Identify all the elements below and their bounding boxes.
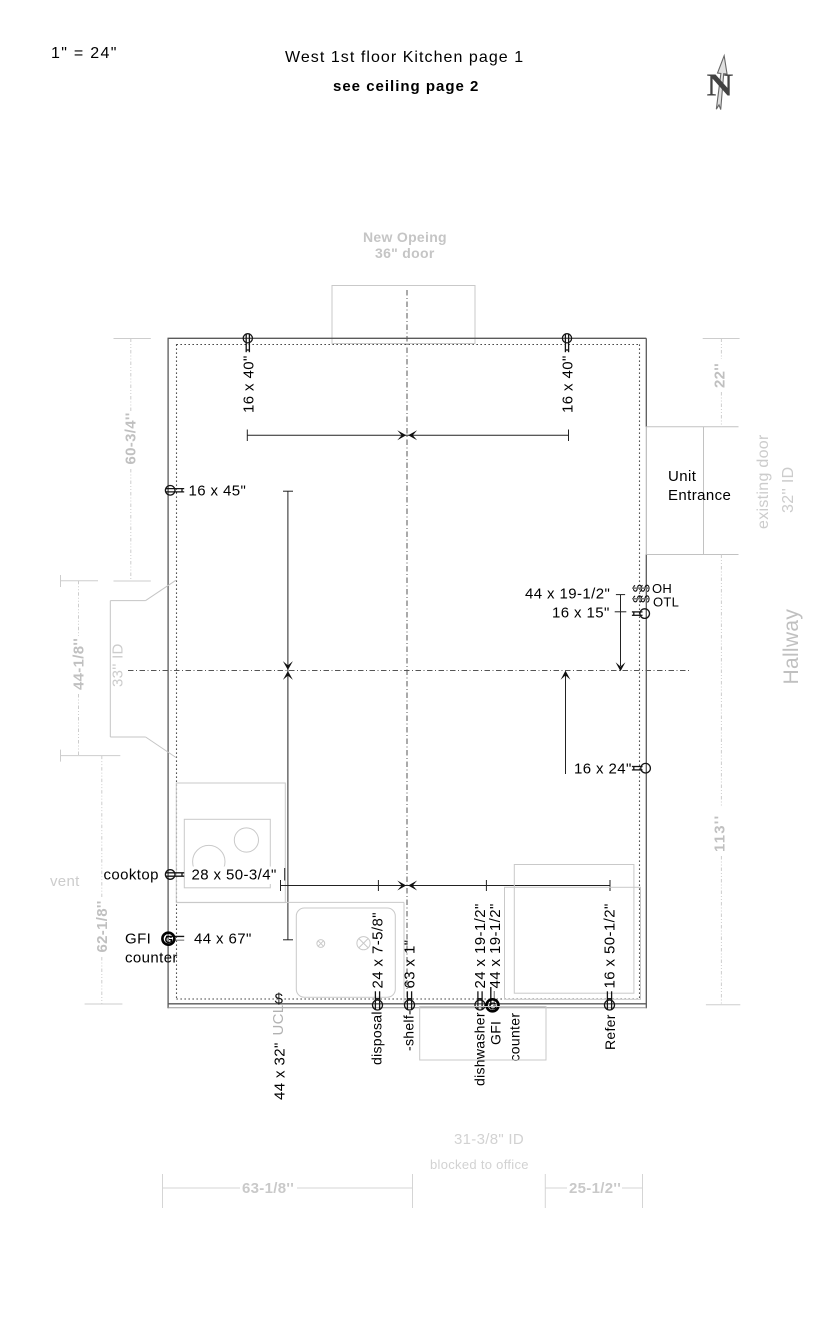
svg-text:36" door: 36" door (375, 245, 435, 261)
svg-text:25-1/2'': 25-1/2'' (569, 1180, 621, 1197)
svg-text:33'' ID: 33'' ID (110, 643, 127, 687)
svg-text:disposal: disposal (369, 1011, 385, 1065)
svg-text:16 x 40": 16 x 40" (560, 355, 577, 413)
svg-text:UCL: UCL (270, 1005, 287, 1036)
svg-text:vent: vent (50, 873, 80, 890)
svg-text:Entrance: Entrance (668, 487, 731, 504)
svg-text:16 x 40": 16 x 40" (241, 355, 258, 413)
svg-text:63 x 1": 63 x 1" (402, 940, 419, 989)
svg-text:counter: counter (125, 950, 178, 967)
svg-text:28 x 50-3/4": 28 x 50-3/4" (192, 867, 277, 884)
svg-text:GFI: GFI (488, 1021, 504, 1045)
svg-text:16 x 24": 16 x 24" (574, 761, 632, 778)
svg-text:dishwasher: dishwasher (471, 1012, 487, 1086)
svg-text:63-1/8'': 63-1/8'' (242, 1180, 294, 1197)
svg-text:62-1/8'': 62-1/8'' (94, 900, 111, 952)
svg-text:60-3/4'': 60-3/4'' (123, 412, 140, 464)
svg-text:16 x 45": 16 x 45" (189, 483, 247, 500)
svg-text:existing door: existing door (755, 434, 772, 529)
svg-text:West 1st floor Kitchen page 1: West 1st floor Kitchen page 1 (285, 49, 524, 66)
svg-text:Unit: Unit (668, 468, 697, 485)
svg-text:GFI: GFI (125, 931, 151, 948)
svg-text:Hallway: Hallway (780, 609, 803, 685)
svg-text:see ceiling page 2: see ceiling page 2 (333, 78, 479, 95)
svg-text:OTL: OTL (653, 595, 679, 610)
svg-text:New Opeing: New Opeing (363, 229, 447, 245)
svg-text:1" = 24": 1" = 24" (51, 45, 118, 62)
svg-text:16 x 15": 16 x 15" (552, 605, 610, 622)
svg-text:G: G (165, 934, 173, 946)
svg-text:113'': 113'' (712, 815, 729, 852)
svg-text:24 x 7-5/8": 24 x 7-5/8" (370, 912, 387, 988)
svg-text:44 x 67": 44 x 67" (194, 931, 252, 948)
svg-text:blocked to office: blocked to office (430, 1157, 529, 1172)
svg-text:31-3/8" ID: 31-3/8" ID (454, 1131, 524, 1148)
svg-text:counter: counter (507, 1013, 523, 1062)
svg-text:32'' ID: 32'' ID (780, 467, 797, 513)
svg-text:cooktop: cooktop (104, 867, 159, 884)
svg-text:44 x 32": 44 x 32" (272, 1042, 289, 1100)
svg-text:44-1/8'': 44-1/8'' (71, 638, 88, 690)
svg-text:44 x 19-1/2": 44 x 19-1/2" (487, 903, 504, 988)
svg-text:N: N (707, 68, 734, 103)
svg-text:16 x 50-1/2": 16 x 50-1/2" (602, 903, 619, 988)
svg-text:-shelf-: -shelf- (401, 1010, 417, 1051)
svg-text:22'': 22'' (712, 363, 729, 388)
svg-text:44 x 19-1/2": 44 x 19-1/2" (525, 586, 610, 603)
svg-text:Refer: Refer (602, 1014, 618, 1050)
